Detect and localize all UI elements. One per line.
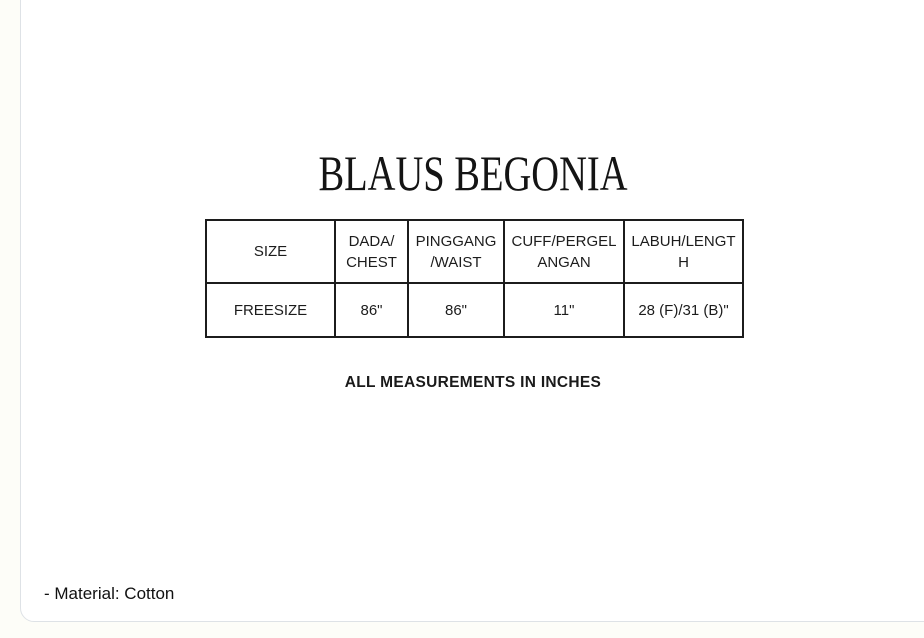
- cell-cuff: 11": [504, 283, 624, 337]
- page-background: BLAUS BEGONIA SIZE DADA/ CHEST PINGGANG …: [0, 0, 924, 638]
- col-header-chest: DADA/ CHEST: [335, 220, 408, 283]
- cell-waist: 86": [408, 283, 504, 337]
- table-row: FREESIZE 86" 86" 11" 28 (F)/31 (B)": [206, 283, 743, 337]
- cell-chest: 86": [335, 283, 408, 337]
- col-header-cuff: CUFF/PERGEL ANGAN: [504, 220, 624, 283]
- size-table: SIZE DADA/ CHEST PINGGANG /WAIST CUFF/PE…: [205, 219, 744, 338]
- size-table-header-row: SIZE DADA/ CHEST PINGGANG /WAIST CUFF/PE…: [206, 220, 743, 283]
- cell-size: FREESIZE: [206, 283, 335, 337]
- col-header-size: SIZE: [206, 220, 335, 283]
- material-note: - Material: Cotton: [44, 584, 174, 604]
- col-header-waist: PINGGANG /WAIST: [408, 220, 504, 283]
- product-title: BLAUS BEGONIA: [126, 148, 821, 198]
- col-header-length: LABUH/LENGT H: [624, 220, 743, 283]
- cell-length: 28 (F)/31 (B)": [624, 283, 743, 337]
- measurements-note: ALL MEASUREMENTS IN INCHES: [22, 374, 924, 392]
